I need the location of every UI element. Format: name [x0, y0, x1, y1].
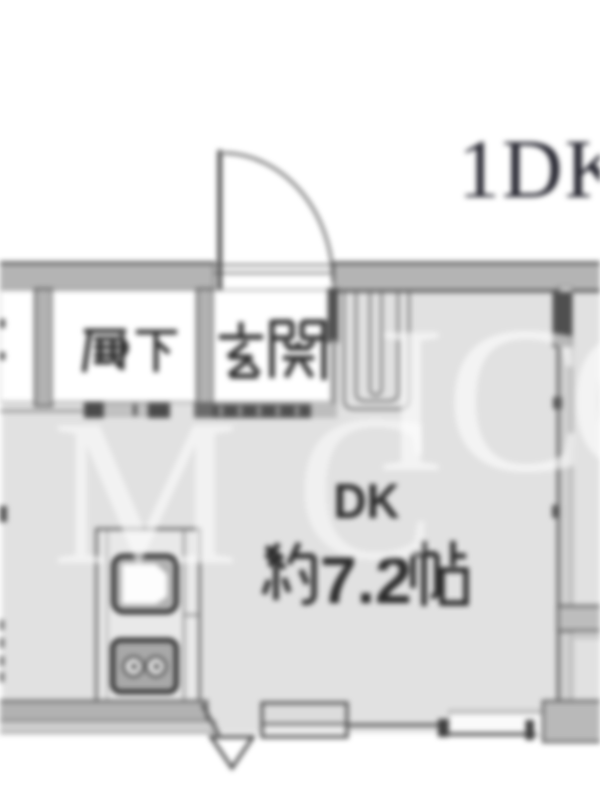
svg-text:O: O	[568, 284, 600, 516]
svg-text:IC: IC	[376, 284, 586, 516]
svg-text:1DK: 1DK	[458, 123, 600, 216]
svg-text:M: M	[52, 377, 239, 609]
